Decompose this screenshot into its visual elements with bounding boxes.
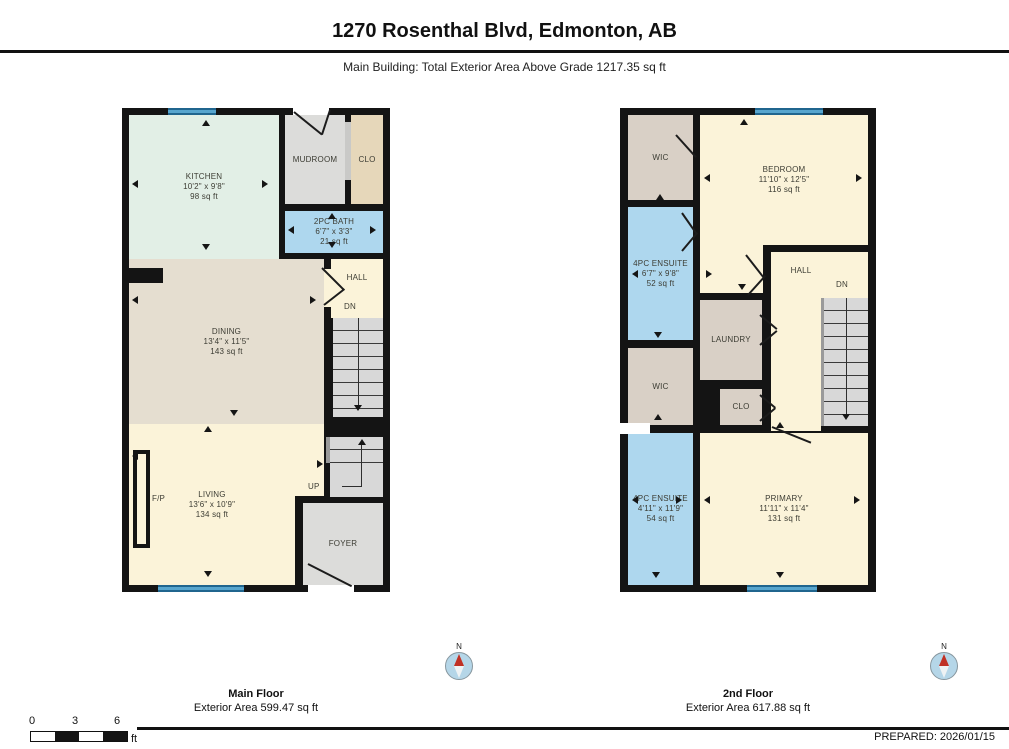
scale-bar-segments xyxy=(30,731,128,742)
stairs-down-second xyxy=(824,298,868,426)
wall-stub xyxy=(129,268,163,283)
compass-icon xyxy=(930,652,958,680)
stairs-down-main xyxy=(333,318,383,417)
dimension-arrow xyxy=(632,496,638,504)
scale-tick: 3 xyxy=(72,715,78,727)
dimension-arrow xyxy=(654,414,662,420)
dimension-arrow xyxy=(654,332,662,338)
dimension-arrow xyxy=(738,284,746,290)
compass-north-label: N xyxy=(441,642,477,652)
dimension-arrow xyxy=(288,226,294,234)
prepared-date: PREPARED: 2026/01/15 xyxy=(874,731,995,743)
window-living xyxy=(158,585,244,592)
dimension-arrow xyxy=(704,174,710,182)
dimension-arrow xyxy=(204,426,212,432)
dimension-arrow xyxy=(328,242,336,248)
door-opening-front xyxy=(308,585,354,592)
room-label: KITCHEN 10'2" x 9'8" 98 sq ft xyxy=(183,172,225,202)
stairs-up-label: UP xyxy=(308,482,320,491)
stairs-down-label: DN xyxy=(344,302,356,311)
room-closet-main: CLO xyxy=(351,115,383,204)
room-ensuite-bottom: 4PC ENSUITE 4'11" x 11'9" 54 sq ft xyxy=(628,433,693,585)
hall-label: HALL xyxy=(331,273,383,282)
dimension-arrow xyxy=(328,213,336,219)
caption-main-floor: Main Floor Exterior Area 599.47 sq ft xyxy=(122,687,390,715)
floorplan-page: { "header": { "title": "1270 Rosenthal B… xyxy=(0,0,1009,749)
window-bedroom xyxy=(755,108,823,115)
dimension-arrow xyxy=(132,180,138,188)
header-divider xyxy=(0,50,1009,53)
dimension-arrow xyxy=(202,244,210,250)
dimension-arrow xyxy=(317,460,323,468)
room-wic-top: WIC xyxy=(628,115,693,200)
compass-needle-south xyxy=(454,666,464,678)
stairs-down-label: DN xyxy=(836,280,848,289)
dimension-arrow xyxy=(310,296,316,304)
dimension-arrow xyxy=(776,422,784,428)
dimension-arrow xyxy=(740,119,748,125)
floor-title: 2nd Floor xyxy=(620,687,876,701)
window-kitchen xyxy=(168,108,216,115)
floor-plan-second: WIC BEDROOM 11'10" x 12'5" 116 sq ft 4PC… xyxy=(620,108,876,592)
room-primary: PRIMARY 11'11" x 11'4" 131 sq ft xyxy=(700,433,868,585)
footer-divider xyxy=(137,727,1009,730)
door-opening-ensuite xyxy=(620,423,650,434)
room-label: BEDROOM 11'10" x 12'5" 116 sq ft xyxy=(759,165,810,195)
dimension-arrow xyxy=(656,194,664,200)
room-bedroom: BEDROOM 11'10" x 12'5" 116 sq ft xyxy=(700,115,868,245)
compass-needle-north xyxy=(454,654,464,666)
room-hall-main xyxy=(331,259,383,318)
room-label: PRIMARY 11'11" x 11'4" 131 sq ft xyxy=(759,494,808,524)
dimension-arrow xyxy=(132,452,138,460)
scale-tick: 6 xyxy=(114,715,120,727)
room-label: 4PC ENSUITE 6'7" x 9'8" 52 sq ft xyxy=(633,259,688,289)
room-living: LIVING 13'6" x 10'9" 134 sq ft xyxy=(129,424,295,585)
stairs-up-main xyxy=(330,437,383,497)
fireplace-label: F/P xyxy=(152,494,165,503)
dimension-arrow xyxy=(706,270,712,278)
room-foyer: FOYER xyxy=(303,503,383,585)
room-hall-strip xyxy=(771,298,821,431)
dimension-arrow xyxy=(776,572,784,578)
compass-icon xyxy=(445,652,473,680)
compass-needle-north xyxy=(939,654,949,666)
floor-area: Exterior Area 599.47 sq ft xyxy=(194,702,318,714)
room-laundry: LAUNDRY xyxy=(700,300,762,380)
floor-title: Main Floor xyxy=(122,687,390,701)
dimension-arrow xyxy=(676,496,682,504)
dimension-arrow xyxy=(230,410,238,416)
scale-unit: ft xyxy=(131,733,137,745)
room-dining: DINING 13'4" x 11'5" 143 sq ft xyxy=(129,259,324,424)
dimension-arrow xyxy=(854,496,860,504)
room-label: DINING 13'4" x 11'5" 143 sq ft xyxy=(204,327,250,357)
compass-rose: N xyxy=(441,642,477,680)
dimension-arrow xyxy=(202,120,210,126)
room-hall-second xyxy=(771,252,868,298)
compass-north-label: N xyxy=(926,642,962,652)
dimension-arrow xyxy=(262,180,268,188)
page-title: 1270 Rosenthal Blvd, Edmonton, AB xyxy=(0,20,1009,43)
room-closet-second: CLO xyxy=(720,389,762,425)
dimension-arrow xyxy=(856,174,862,182)
room-kitchen: KITCHEN 10'2" x 9'8" 98 sq ft xyxy=(129,115,279,259)
floor-area: Exterior Area 617.88 sq ft xyxy=(686,702,810,714)
caption-second-floor: 2nd Floor Exterior Area 617.88 sq ft xyxy=(620,687,876,715)
fireplace xyxy=(133,450,150,548)
window-primary xyxy=(747,585,817,592)
hall-label: HALL xyxy=(771,266,831,275)
compass-needle-south xyxy=(939,666,949,678)
dimension-arrow xyxy=(370,226,376,234)
dimension-arrow xyxy=(704,496,710,504)
stair-railing xyxy=(326,437,330,463)
dimension-arrow xyxy=(132,296,138,304)
page-subtitle: Main Building: Total Exterior Area Above… xyxy=(0,60,1009,74)
floor-plan-main: KITCHEN 10'2" x 9'8" 98 sq ft MUDROOM CL… xyxy=(122,108,390,592)
room-label: LIVING 13'6" x 10'9" 134 sq ft xyxy=(189,490,235,520)
dimension-arrow xyxy=(204,571,212,577)
closet-door xyxy=(345,122,351,180)
dimension-arrow xyxy=(632,270,638,278)
compass-rose: N xyxy=(926,642,962,680)
scale-tick: 0 xyxy=(29,715,35,727)
dimension-arrow xyxy=(652,572,660,578)
